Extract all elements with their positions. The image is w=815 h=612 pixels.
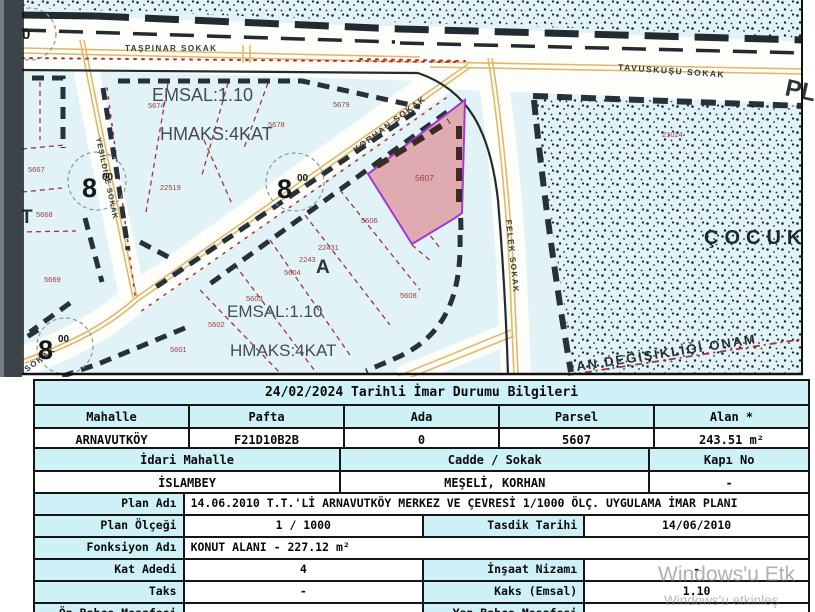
zone-emsal-top: EMSAL:1.10 (152, 85, 253, 105)
header-kapi-no: Kapı No (649, 448, 809, 471)
label-plan-adi: Plan Adı (34, 493, 184, 515)
header-ada: Ada (344, 405, 499, 428)
windows-activation-watermark-line2: Windows'u etkinleş (664, 593, 778, 608)
header-idari-mahalle: İdari Mahalle (34, 448, 340, 471)
parcel-label-5674: 5674 (148, 101, 165, 110)
label-insaat-nizami: İnşaat Nizamı (423, 559, 584, 581)
svg-text:00: 00 (58, 334, 70, 345)
header-parsel: Parsel (499, 405, 654, 428)
parcel-label-5679: 5679 (333, 100, 350, 109)
value-on-bahce: - (184, 603, 423, 612)
label-yan-bahce: Yan Bahçe Mesafesi (423, 603, 584, 612)
zone-hmaks-bottom: HMAKS:4KAT (230, 341, 336, 360)
svg-text:8: 8 (38, 335, 53, 365)
label-kat-adedi: Kat Adedi (34, 559, 184, 581)
parcel-label-5668: 5668 (36, 210, 53, 219)
value-kat-adedi: 4 (184, 559, 423, 581)
svg-text:8: 8 (82, 173, 97, 203)
report-title: 24/02/2024 Tarihli İmar Durumu Bilgileri (34, 380, 809, 405)
value-idari-mahalle: İSLAMBEY (34, 471, 340, 494)
parcel-label-5608: 5608 (400, 291, 417, 300)
zoning-map-canvas: TAŞPINAR SOKAK TAVUSKUŞU SOKAK KORHAN SO… (0, 0, 815, 377)
parcel-label-5602: 5602 (208, 320, 225, 329)
label-kaks: Kaks (Emsal) (423, 581, 584, 603)
label-plan-olcegi: Plan Ölçeği (34, 515, 184, 537)
parcel-label-5607: 5607 (415, 173, 434, 183)
parcel-label-5604: 5604 (284, 268, 301, 277)
value-plan-adi: 14.06.2010 T.T.'Lİ ARNAVUTKÖY MERKEZ VE … (184, 493, 809, 515)
value-tasdik-tarihi: 14/06/2010 (584, 515, 809, 537)
parcel-label-5603: 5603 (246, 294, 263, 303)
header-mahalle: Mahalle (34, 405, 189, 428)
header-pafta: Pafta (189, 405, 344, 428)
zone-emsal-bottom: EMSAL:1.10 (227, 302, 322, 321)
label-fonksiyon-adi: Fonksiyon Adı (34, 537, 184, 559)
parcel-label-5678: 5678 (268, 120, 285, 129)
block-letter-a: A (316, 257, 330, 278)
parcel-label-2243-partial: 2243 (299, 255, 316, 264)
street-label-taspinar: TAŞPINAR SOKAK (125, 44, 217, 53)
parcel-label-5667: 5667 (28, 165, 45, 174)
label-taks: Taks (34, 581, 184, 603)
value-plan-olcegi: 1 / 1000 (184, 515, 423, 537)
parcel-label-21024: 21024 (662, 130, 683, 139)
windows-activation-watermark-line1: Windows'u Etk (658, 563, 795, 587)
parcel-label-5601: 5601 (170, 345, 187, 354)
label-on-bahce: Ön Bahçe Mesafesi (34, 603, 184, 612)
parcel-label-22519: 22519 (160, 183, 181, 192)
parcel-info-table: 24/02/2024 Tarihli İmar Durumu Bilgileri… (33, 379, 810, 452)
zoning-map[interactable]: TAŞPINAR SOKAK TAVUSKUŞU SOKAK KORHAN SO… (0, 0, 815, 377)
value-taks: - (184, 581, 423, 603)
svg-text:00: 00 (102, 172, 114, 183)
svg-text:00: 00 (297, 173, 309, 184)
svg-text:8: 8 (277, 174, 292, 204)
header-cadde-sokak: Cadde / Sokak (340, 448, 649, 471)
park-label-cocuk-partial: ÇOCUK (704, 227, 807, 249)
parcel-label-22431: 22431 (318, 243, 339, 252)
zone-hmaks-top: HMAKS:4KAT (160, 124, 273, 144)
parcel-label-5669: 5669 (44, 275, 61, 284)
value-cadde-sokak: MEŞELİ, KORHAN (340, 471, 649, 494)
label-tasdik-tarihi: Tasdik Tarihi (423, 515, 584, 537)
value-kapi-no: - (649, 471, 809, 494)
imar-durumu-screen: TAŞPINAR SOKAK TAVUSKUŞU SOKAK KORHAN SO… (0, 0, 815, 612)
parcel-label-5606: 5606 (361, 216, 378, 225)
address-info-table: İdari Mahalle Cadde / Sokak Kapı No İSLA… (33, 447, 810, 495)
value-fonksiyon-adi: KONUT ALANI - 227.12 m² (184, 537, 809, 559)
header-alan: Alan * (654, 405, 809, 428)
